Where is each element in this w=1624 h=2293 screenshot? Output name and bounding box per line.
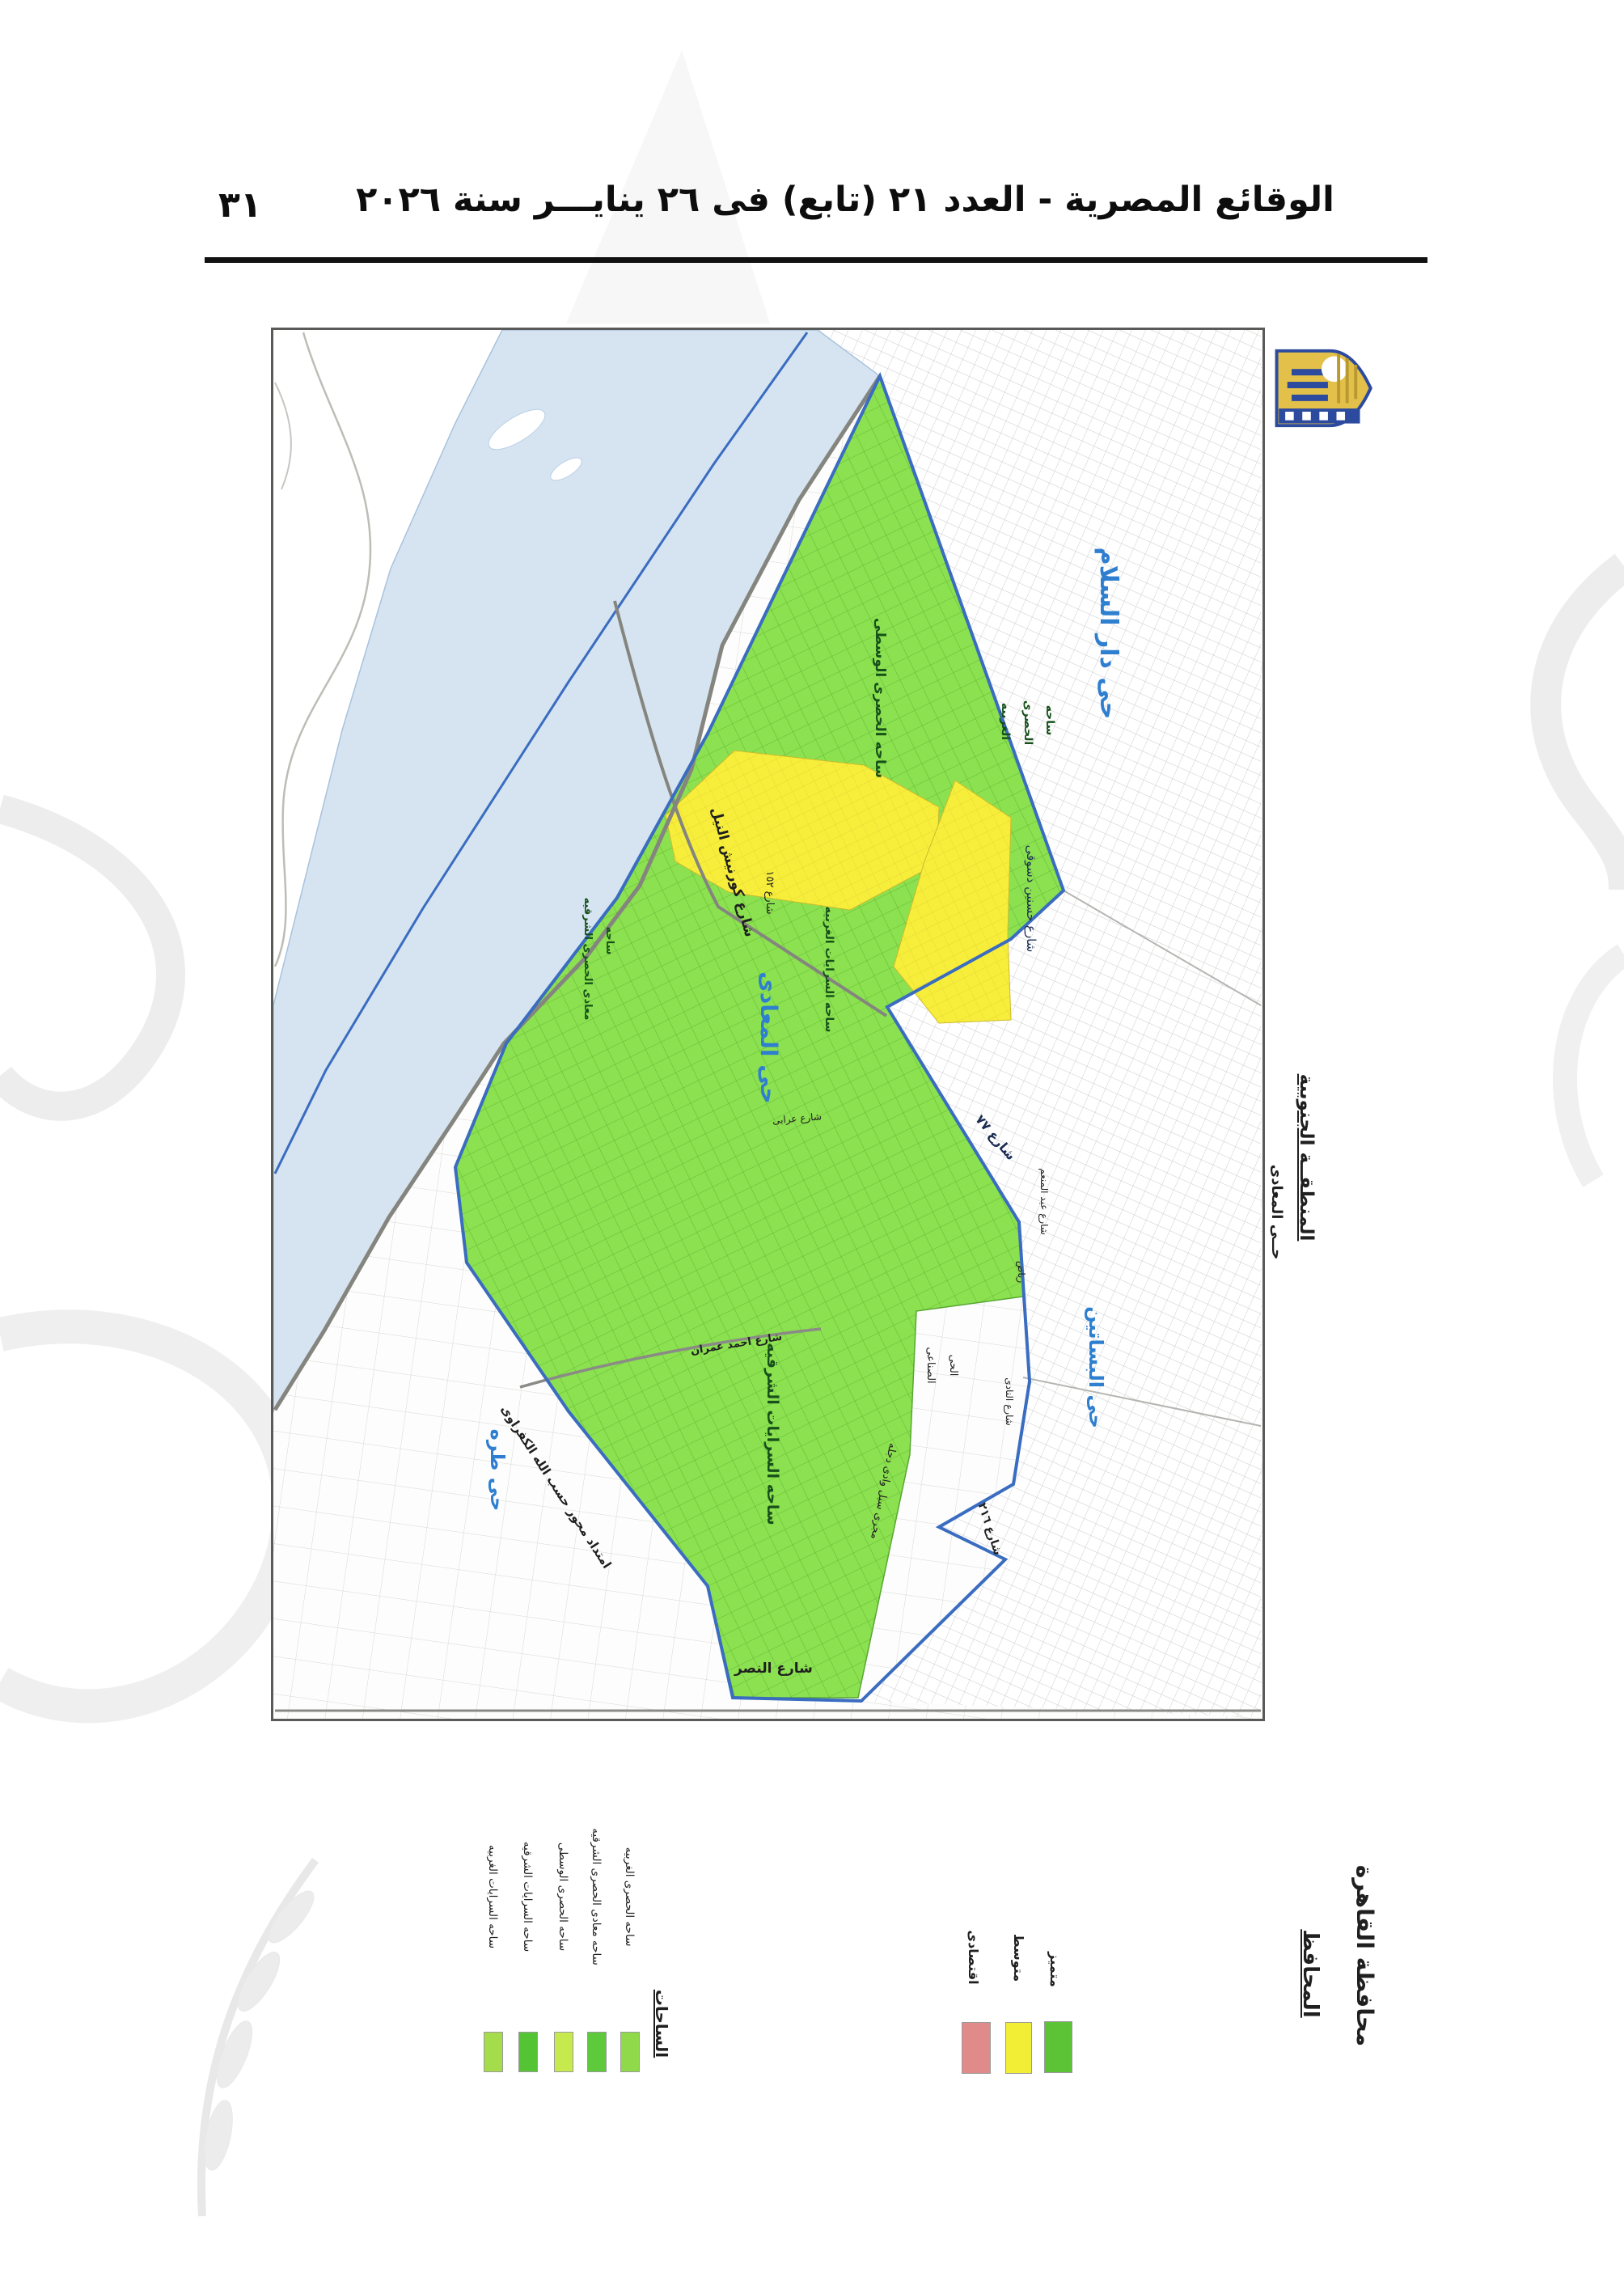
area-label-hosary-gharbiya-line3: الغربيه (999, 692, 1012, 751)
street-label-el-nady: شارع النادى (1004, 1349, 1015, 1454)
district-label-maadi: حى المعادى (755, 961, 782, 1115)
district-label-tura: حى طره (486, 1419, 509, 1521)
area-label-maadi-hosary-sharkiya-line2: معادى الحصرى الشرقيه (582, 880, 594, 1038)
area-label-hosary-gharbiya-line1: ساحه (1043, 698, 1056, 742)
area-label-hosary-wosta: ساحه الحصرى الوسطى (872, 581, 888, 815)
area-label-industrial-line2: الصناعى (924, 1321, 937, 1410)
area-label-sarayat-gharbiya: ساحه السرايات الغربيه (823, 874, 835, 1064)
street-label-nasr: شارع النصر (734, 1661, 813, 1677)
street-label-152: شارع ١٥٢ (763, 854, 776, 931)
street-label-abdel-moneim-line1: شارع عبد المنعم (1038, 1151, 1050, 1252)
cairo-governorate-logo-icon (1268, 335, 1375, 442)
legend-item-swatch (518, 2032, 538, 2072)
area-label-maadi-hosary-sharkiya-line1: ساحه (603, 912, 615, 969)
signature-governorate: محافظة القاهرة (1351, 1834, 1378, 2077)
district-label-dar-el-salam: حى دار السلام (1094, 524, 1123, 742)
rating-label-motawasset: متوسط (1011, 1915, 1026, 2000)
map-canvas: حى دار السلام حى المعادى حى البساتين حى … (271, 328, 1265, 1721)
rating-swatch-eqtisadi (962, 2022, 991, 2074)
side-note-maadi-district: حــى المعادى (1268, 1157, 1285, 1267)
area-label-hosary-gharbiya-line2: الحصرى (1021, 692, 1034, 753)
legend-item-label: ساحه السرايات الغربيه (486, 1775, 499, 2018)
legend-sahat-title: الساحات (652, 1971, 671, 2076)
legend-item-label: ساحه معادى الحصرى الشرقيه (590, 1775, 603, 2018)
rating-swatch-motawasset (1005, 2022, 1032, 2074)
legend-item-label: ساحه الحصرى الوسطى (556, 1775, 569, 2018)
legend-item-swatch (554, 2032, 573, 2072)
signature-governor: المحافظ (1298, 1909, 1322, 2038)
legend-item-swatch (484, 2032, 503, 2072)
rating-label-eqtisadi: اقتصادى (966, 1905, 981, 2010)
area-label-industrial-line1: الحى (947, 1337, 959, 1394)
page-number: ٣١ (218, 184, 262, 226)
header-rule (205, 257, 1427, 263)
district-label-basateen: حى البساتين (1085, 1284, 1107, 1450)
gazette-page: ٣١ الوقائع المصرية - العدد ٢١ (تابع) فى … (0, 0, 1624, 2293)
legend-item-swatch (620, 2032, 640, 2072)
side-note-southern-zone: المنطقــة الجنوبية (1296, 1060, 1317, 1254)
legend-item-swatch (587, 2032, 607, 2072)
legend-item-label: ساحه السرايات الشرقيه (521, 1775, 534, 2018)
street-label-hassanein-dessouky: شارع حسنين دسوقى (1024, 777, 1038, 1020)
street-label-abdel-moneim-line2: رياض (1016, 1242, 1027, 1302)
page-title: الوقائع المصرية - العدد ٢١ (تابع) فى ٢٦ … (356, 180, 1334, 220)
rating-swatch-momtaz (1044, 2021, 1072, 2073)
rating-label-momtaz: متميز (1047, 1937, 1063, 2002)
legend-item-label: ساحه الحصرى الغربيه (623, 1775, 636, 2018)
